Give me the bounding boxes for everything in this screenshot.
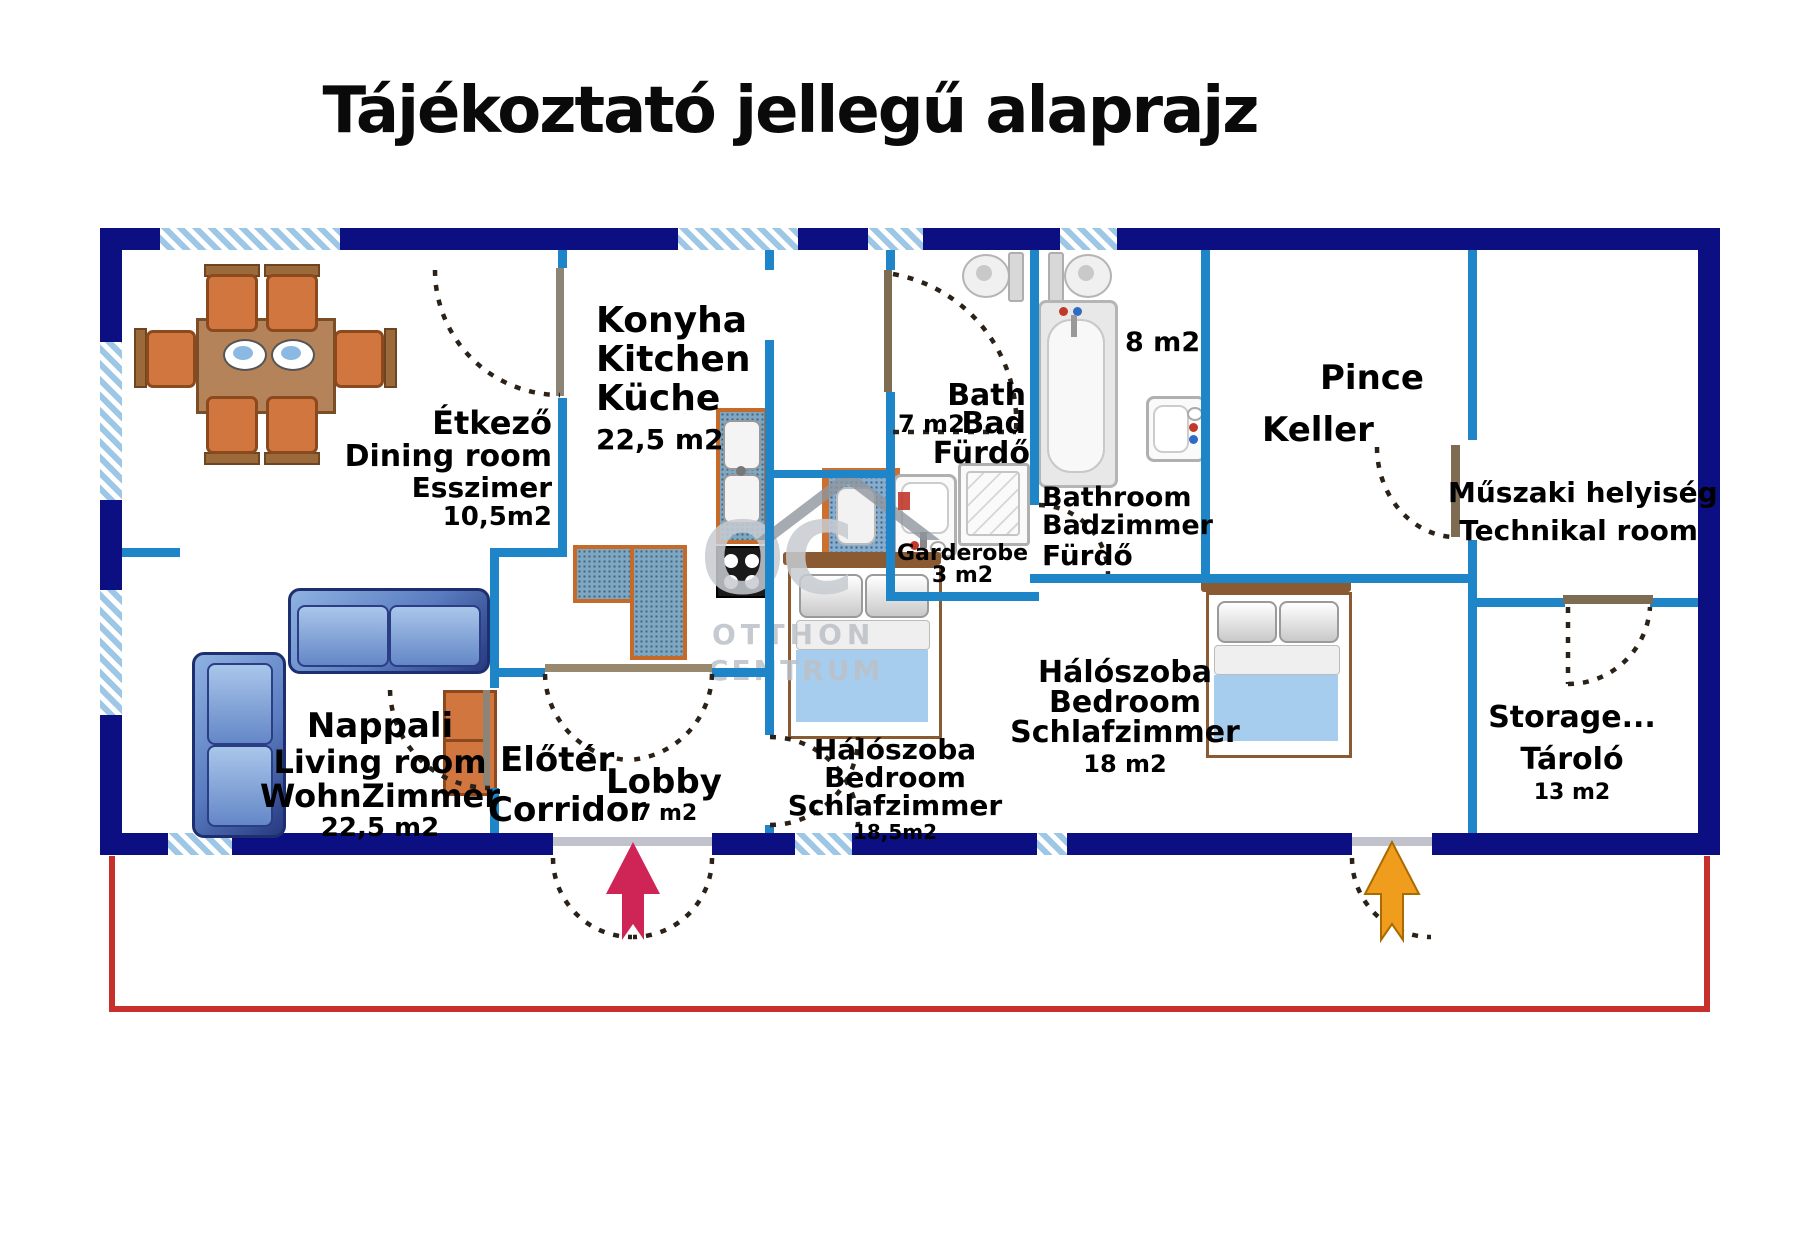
room-label-living: Nappali Living room WohnZimmer 22,5 m2 [240,708,520,842]
room-label-bathroom: Bathroom Badzimmer Fürdő [1042,484,1213,570]
room-label-bedroom1: Hálószoba Bedroom Schlafzimmer 18,5m2 [770,736,1020,842]
door-swings-and-symbols [0,0,1820,1260]
room-label-bath-hu: Fürdő [930,438,1030,470]
room-label-lobby-alt: Corridor [488,792,646,829]
room-label-bedroom2: Hálószoba Bedroom Schlafzimmer 18 m2 [1000,658,1250,776]
room-label-lobby-hu: Előtér [500,742,614,779]
room-label-cellar-hu: Pince [1320,360,1424,397]
door-arc-cellar [1377,447,1452,537]
secondary-entrance-arrow-icon [1365,842,1419,940]
room-label-technical: Műszaki helyiség Technikal room [1448,478,1698,546]
door-arc-lobby-kitchen-right [627,674,712,760]
room-label-cellar-de: Keller [1262,412,1374,449]
entrance-arrow-icon [606,842,660,940]
door-arc-storage [1568,607,1650,684]
room-label-dining: Étkező Dining room Esszimer 10,5m2 [310,406,552,531]
room-label-bathroom-area: 8 m2 [1125,328,1200,357]
room-label-bath-area: 7 m2 [898,412,965,438]
room-label-lobby-area: 7 m2 [636,802,697,826]
floorplan-page: Tájékoztató jellegű alaprajz OC OTTHON [0,0,1820,1260]
plot-boundary-red-line [112,856,1707,1009]
room-label-storage: Storage... Tároló 13 m2 [1452,702,1692,805]
room-label-garderobe: Garderobe 3 m2 [890,543,1035,587]
door-arc-dining [435,270,560,395]
room-label-kitchen: Konyha Kitchen Küche 22,5 m2 [596,302,750,455]
